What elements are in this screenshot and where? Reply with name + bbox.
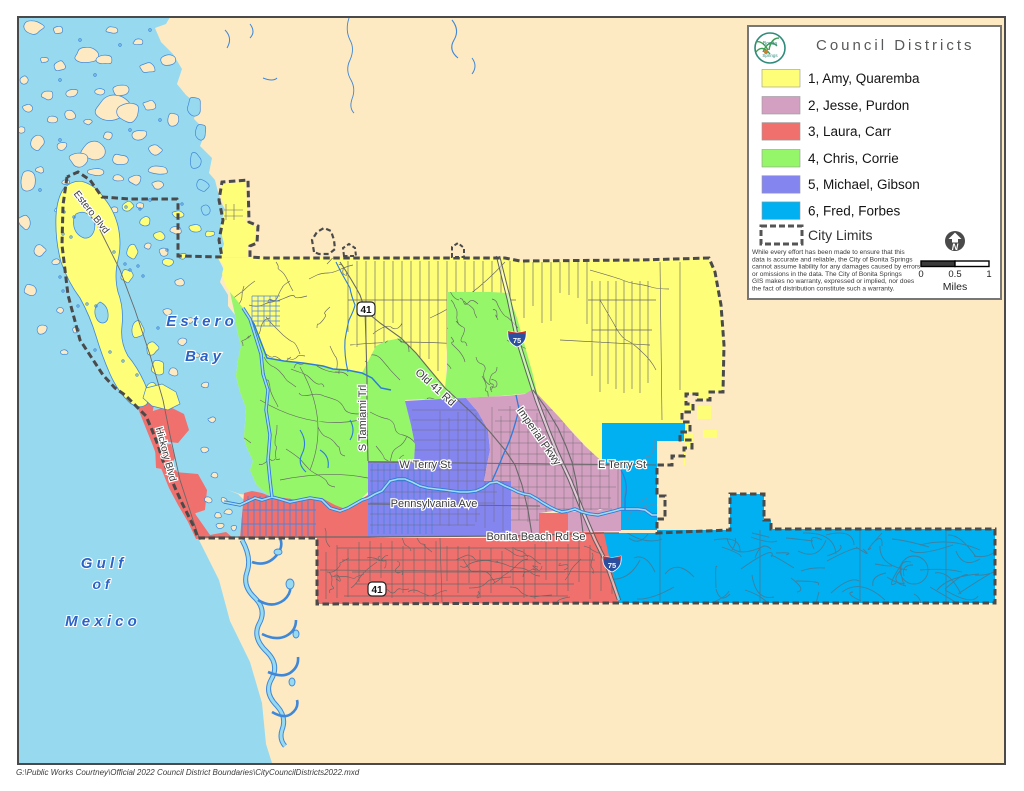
- svg-text:Pennsylvania Ave: Pennsylvania Ave: [391, 498, 478, 510]
- svg-text:o f: o f: [92, 576, 110, 592]
- svg-text:75: 75: [513, 336, 521, 345]
- svg-text:2, Jesse, Purdon: 2, Jesse, Purdon: [808, 98, 909, 113]
- svg-text:G:\Public Works Courtney\Offic: G:\Public Works Courtney\Official 2022 C…: [16, 768, 360, 777]
- svg-text:75: 75: [608, 561, 616, 570]
- svg-text:the fact of distribution const: the fact of distribution constitute such…: [752, 286, 895, 293]
- svg-text:data is accurate and reliable,: data is accurate and reliable, the City …: [752, 256, 913, 263]
- svg-text:While every effort has been ma: While every effort has been made to ensu…: [752, 249, 905, 256]
- svg-text:Springs: Springs: [762, 53, 778, 58]
- svg-text:0.5: 0.5: [948, 269, 961, 280]
- svg-text:3, Laura, Carr: 3, Laura, Carr: [808, 124, 892, 139]
- svg-text:B a y: B a y: [185, 348, 222, 365]
- svg-text:Council Districts: Council Districts: [816, 37, 975, 54]
- svg-text:6, Fred, Forbes: 6, Fred, Forbes: [808, 203, 901, 218]
- svg-text:41: 41: [360, 305, 372, 316]
- svg-text:G u l f: G u l f: [81, 555, 126, 572]
- svg-text:or omissions in the data. The: or omissions in the data. The City of Bo…: [752, 271, 902, 278]
- svg-text:N: N: [952, 242, 959, 252]
- svg-text:M e x i c o: M e x i c o: [65, 613, 137, 630]
- svg-text:4, Chris, Corrie: 4, Chris, Corrie: [808, 151, 899, 166]
- svg-text:1: 1: [986, 269, 991, 280]
- svg-text:GIS makes no warranty, express: GIS makes no warranty, expressed or impl…: [752, 278, 915, 285]
- svg-text:5, Michael, Gibson: 5, Michael, Gibson: [808, 177, 920, 192]
- svg-text:E Terry St: E Terry St: [598, 459, 646, 471]
- svg-text:E s t e r o: E s t e r o: [166, 313, 234, 330]
- svg-text:S Tamiami Trl: S Tamiami Trl: [357, 385, 369, 451]
- svg-text:cannot assume liability for an: cannot assume liability for any damages …: [752, 264, 921, 271]
- svg-text:Bonita: Bonita: [763, 41, 777, 47]
- svg-text:W Terry St: W Terry St: [399, 459, 450, 471]
- svg-text:Bonita Beach Rd Se: Bonita Beach Rd Se: [486, 531, 585, 543]
- svg-text:1, Amy, Quaremba: 1, Amy, Quaremba: [808, 71, 920, 86]
- svg-text:Miles: Miles: [943, 281, 968, 293]
- svg-text:City Limits: City Limits: [808, 227, 873, 243]
- svg-text:41: 41: [371, 585, 383, 596]
- svg-text:0: 0: [918, 269, 923, 280]
